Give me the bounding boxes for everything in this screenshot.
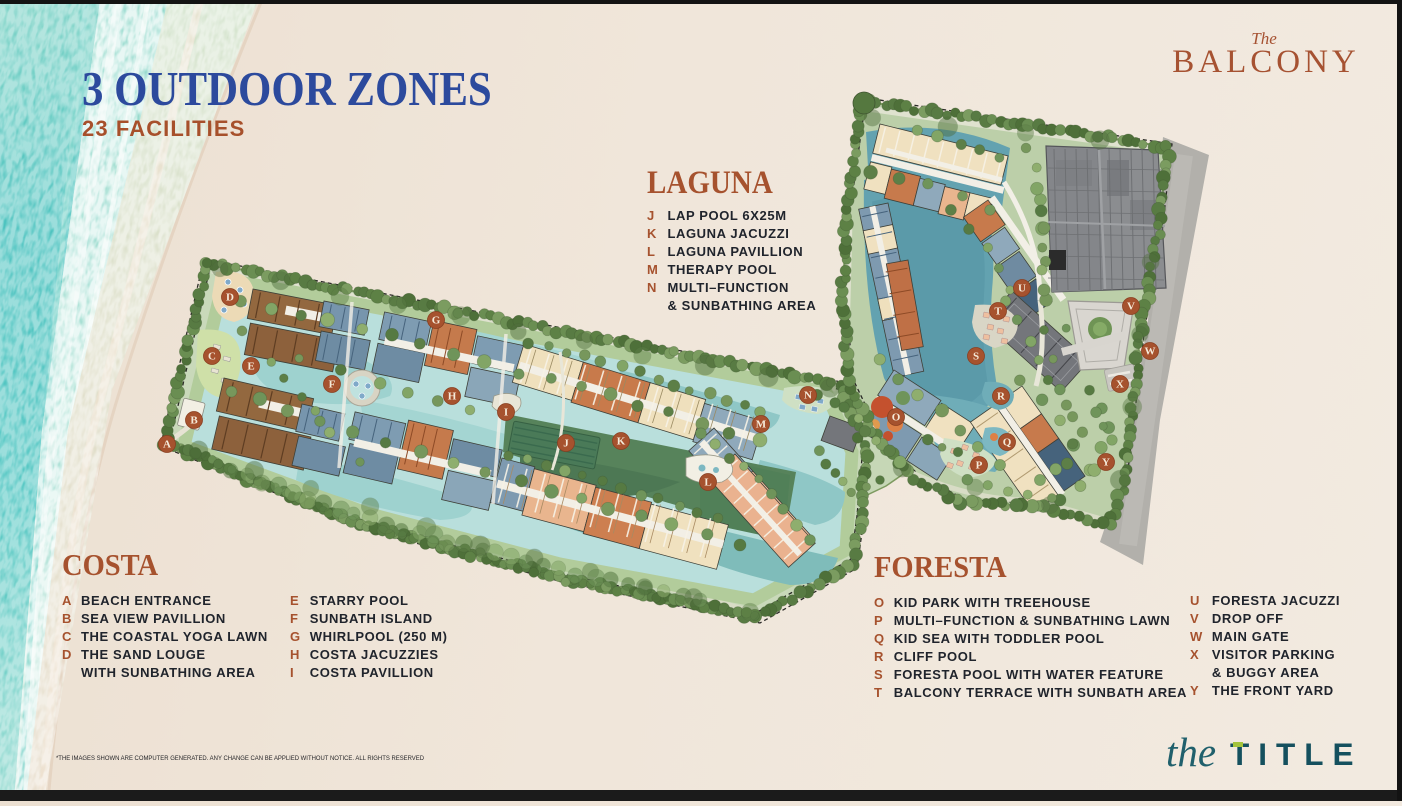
svg-text:B: B	[190, 415, 198, 427]
svg-text:E: E	[247, 361, 254, 373]
svg-text:F: F	[329, 379, 336, 391]
svg-text:I: I	[504, 407, 508, 419]
svg-text:A: A	[163, 439, 171, 451]
svg-text:Y: Y	[1102, 457, 1110, 469]
svg-text:W: W	[1145, 346, 1156, 358]
svg-text:G: G	[432, 315, 441, 327]
svg-text:J: J	[563, 438, 569, 450]
svg-text:X: X	[1116, 379, 1124, 391]
svg-text:L: L	[704, 477, 711, 489]
svg-text:Q: Q	[1003, 437, 1012, 449]
svg-text:V: V	[1127, 301, 1135, 313]
svg-text:H: H	[448, 391, 457, 403]
svg-text:R: R	[997, 391, 1006, 403]
svg-text:D: D	[226, 292, 234, 304]
svg-text:O: O	[892, 412, 901, 424]
svg-text:U: U	[1018, 283, 1026, 295]
svg-text:N: N	[804, 390, 812, 402]
svg-text:P: P	[976, 460, 983, 472]
svg-text:S: S	[973, 351, 979, 363]
svg-text:C: C	[208, 351, 216, 363]
svg-text:T: T	[994, 306, 1002, 318]
svg-text:M: M	[756, 419, 767, 431]
svg-text:K: K	[617, 436, 626, 448]
